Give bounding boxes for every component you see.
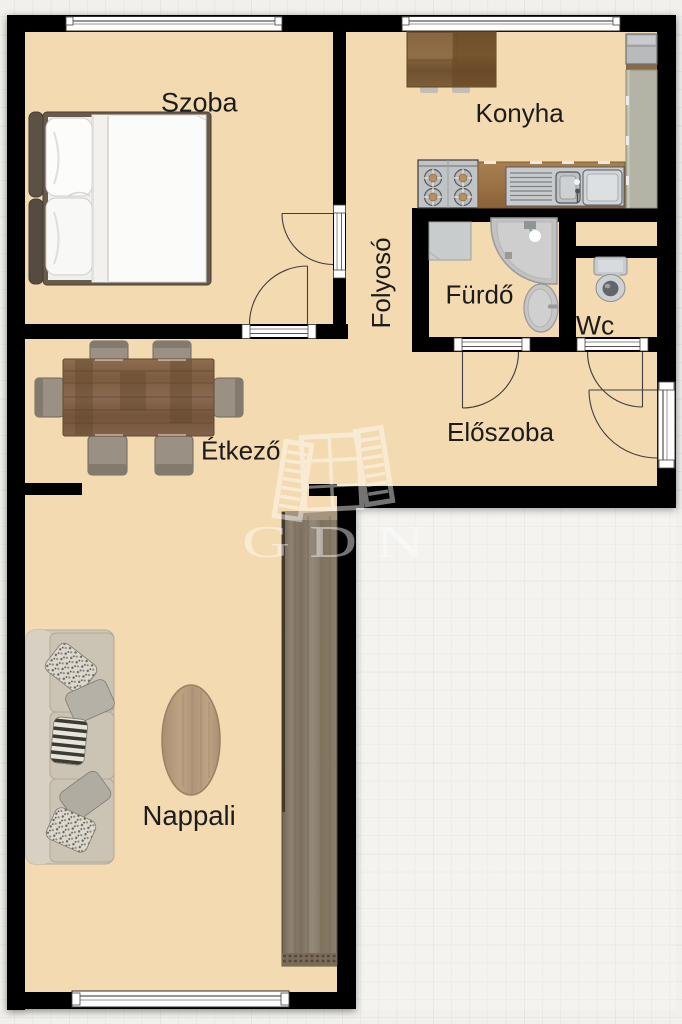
svg-text:GDN: GDN (242, 517, 443, 568)
svg-text:Konyha: Konyha (476, 98, 565, 128)
svg-text:Fürdő: Fürdő (446, 280, 514, 310)
svg-text:Folyosó: Folyosó (366, 237, 396, 328)
svg-text:Nappali: Nappali (143, 800, 236, 831)
svg-text:Szoba: Szoba (161, 88, 239, 118)
svg-text:Étkező: Étkező (201, 436, 281, 466)
svg-text:Wc: Wc (576, 311, 614, 341)
svg-text:Előszoba: Előszoba (447, 417, 554, 447)
